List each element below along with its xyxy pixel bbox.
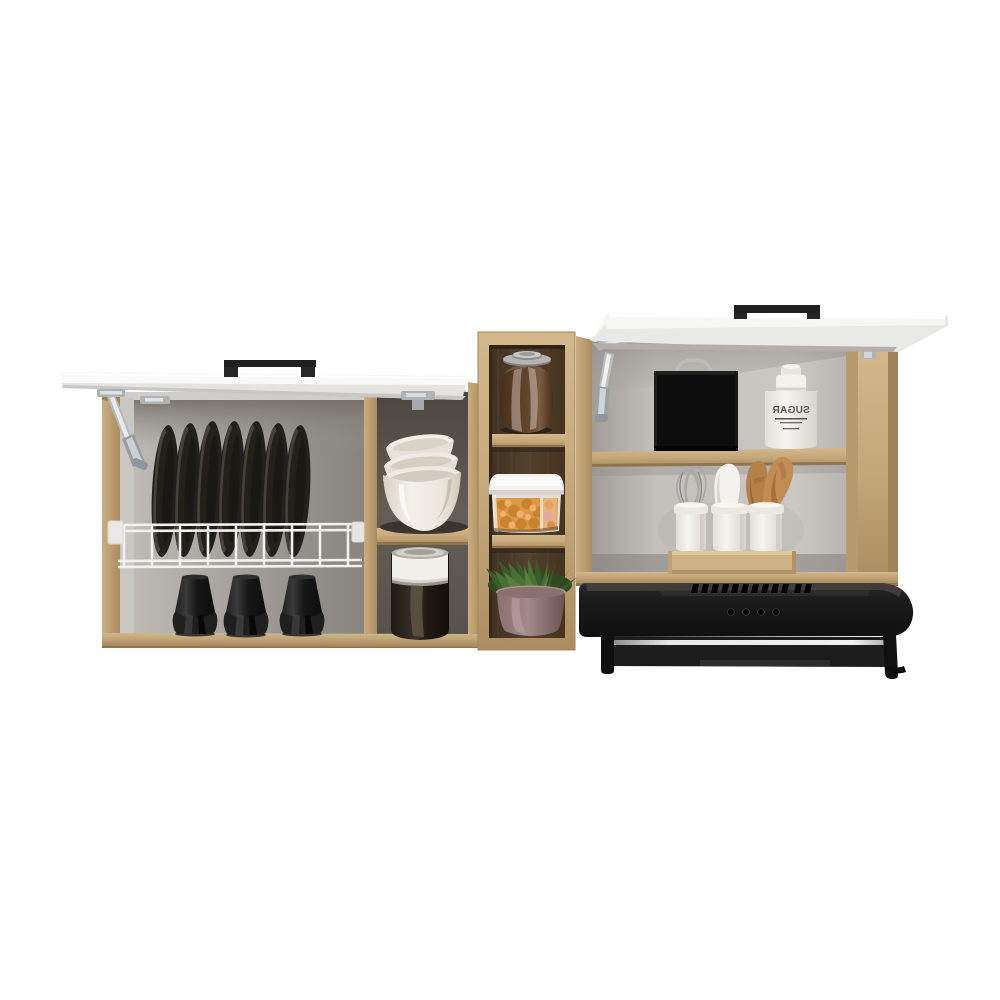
svg-text:SUGAR: SUGAR xyxy=(772,405,810,416)
